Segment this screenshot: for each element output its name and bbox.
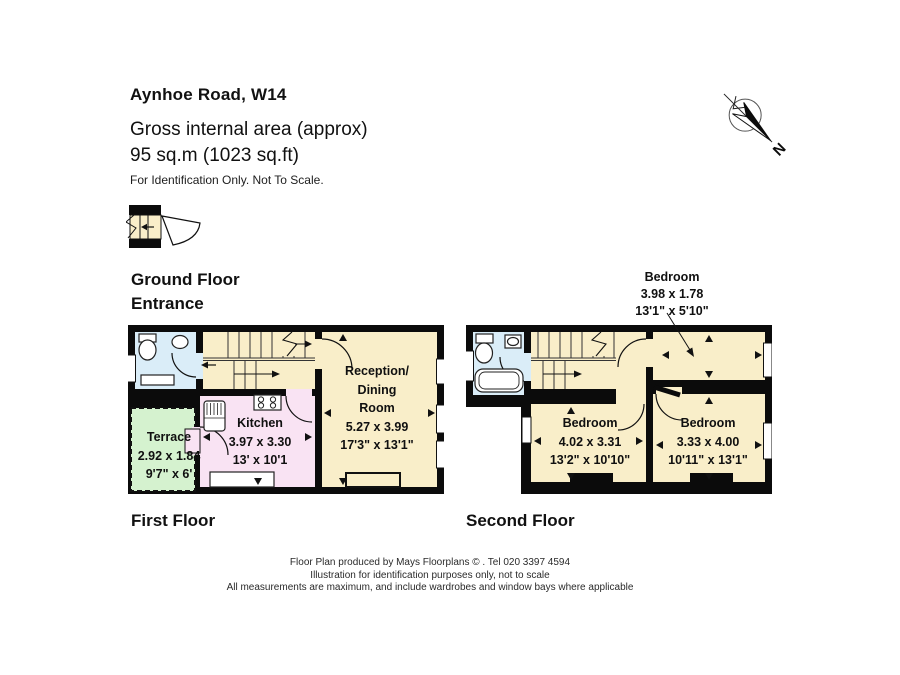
room-dim-metric: 3.97 x 3.30 <box>203 433 317 452</box>
floorplan-page: Aynhoe Road, W14 Gross internal area (ap… <box>0 0 900 675</box>
room-dim-imperial: 13'2" x 10'10" <box>527 451 653 470</box>
counter-icon <box>210 472 274 487</box>
ground-floor-label-line2: Entrance <box>131 292 240 316</box>
room-dim-metric: 3.98 x 1.78 <box>612 286 732 303</box>
room-name: Bedroom <box>645 414 771 433</box>
room-name: Kitchen <box>203 414 317 433</box>
stove-icon <box>254 395 281 410</box>
room-dim-imperial: 13'1" x 5'10" <box>612 303 732 320</box>
room-name: Dining <box>320 381 434 400</box>
reception-room-label: Reception/ Dining Room 5.27 x 3.99 17'3"… <box>320 362 434 455</box>
entrance-diagram-icon <box>126 202 206 252</box>
page-title: Aynhoe Road, W14 <box>130 85 287 105</box>
door-leaf-icon <box>162 216 200 245</box>
terrace-room-label: Terrace 2.92 x 1.84 9'7" x 6' <box>126 428 212 484</box>
room-name: Bedroom <box>612 269 732 286</box>
room-name: Room <box>320 399 434 418</box>
room-dim-imperial: 13' x 10'1 <box>203 451 317 470</box>
room-dim-imperial: 10'11" x 13'1" <box>645 451 771 470</box>
bedroom-rear-label: Bedroom 4.02 x 3.31 13'2" x 10'10" <box>527 414 653 470</box>
footer-line1: Floor Plan produced by Mays Floorplans ©… <box>80 557 780 570</box>
gross-area-value: 95 sq.m (1023 sq.ft) <box>130 145 299 167</box>
room-dim-metric: 3.33 x 4.00 <box>645 433 771 452</box>
identification-note: For Identification Only. Not To Scale. <box>130 173 324 187</box>
room-dim-metric: 5.27 x 3.99 <box>320 418 434 437</box>
room-dim-imperial: 17'3" x 13'1" <box>320 436 434 455</box>
bedroom-small-label: Bedroom 3.98 x 1.78 13'1" x 5'10" <box>612 269 732 320</box>
compass-icon: N <box>700 70 800 180</box>
compass-north-indicator: N <box>700 70 800 180</box>
room-name: Bedroom <box>527 414 653 433</box>
room-dim-metric: 4.02 x 3.31 <box>527 433 653 452</box>
second-floor-caption: Second Floor <box>466 511 575 531</box>
room-dim-imperial: 9'7" x 6' <box>126 465 212 484</box>
ground-floor-label: Ground Floor Entrance <box>131 268 240 316</box>
ground-floor-label-line1: Ground Floor <box>131 268 240 292</box>
bedroom-front-label: Bedroom 3.33 x 4.00 10'11" x 13'1" <box>645 414 771 470</box>
footer-line2: Illustration for identification purposes… <box>80 570 780 583</box>
room-name: Terrace <box>126 428 212 447</box>
chimney-breast <box>570 473 613 483</box>
footer-line3: All measurements are maximum, and includ… <box>80 582 780 595</box>
leader-arrowhead <box>686 348 694 358</box>
gross-area-label: Gross internal area (approx) <box>130 119 368 141</box>
room-name: Reception/ <box>320 362 434 381</box>
footer-disclaimer: Floor Plan produced by Mays Floorplans ©… <box>80 557 780 595</box>
kitchen-room-label: Kitchen 3.97 x 3.30 13' x 10'1 <box>203 414 317 470</box>
first-floor-caption: First Floor <box>131 511 215 531</box>
room-dim-metric: 2.92 x 1.84 <box>126 447 212 466</box>
chimney-breast <box>346 473 400 487</box>
ground-floor-entrance-diagram <box>126 202 206 252</box>
